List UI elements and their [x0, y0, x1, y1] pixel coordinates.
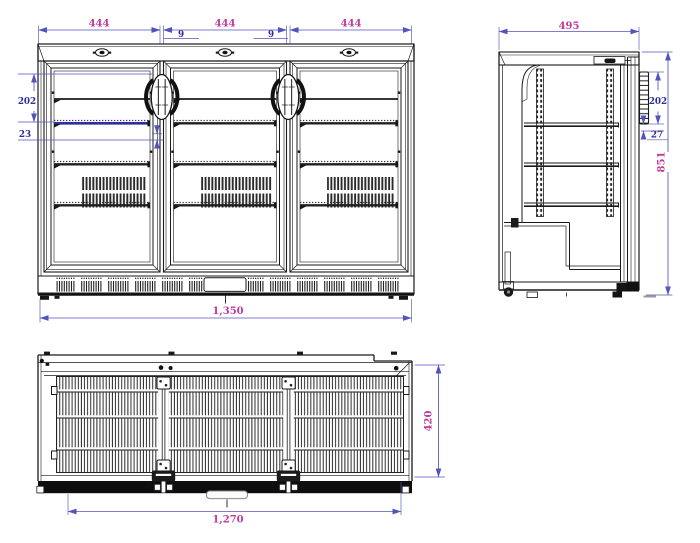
dim-top-shelf-height: 202	[18, 97, 36, 107]
side-compressor-step	[504, 218, 621, 270]
bottom-top-edge	[38, 352, 412, 376]
technical-drawing-page: 444 444 444 9 9 202 23 1,350	[0, 0, 700, 543]
door3-slatted-shelf-upper	[327, 177, 394, 190]
bottom-base-band	[37, 471, 412, 499]
side-front-foot	[613, 292, 623, 298]
dim-door-width-1: 444	[89, 19, 110, 30]
door3-lock-icon	[340, 49, 358, 57]
dim-handle-clearance: 27	[651, 131, 663, 141]
side-rear-access-panel	[505, 252, 511, 284]
corner-bolt-left	[40, 359, 44, 363]
front-foot-left	[40, 296, 49, 300]
hinge-screw	[169, 366, 173, 370]
bar-cooler-technical-drawing: 444 444 444 9 9 202 23 1,350	[0, 0, 700, 543]
side-interior-duct	[522, 65, 537, 223]
door2-slatted-shelf-upper	[201, 177, 273, 190]
grille-divider-2	[282, 377, 295, 473]
side-drain-hook	[527, 292, 538, 298]
bottom-view-drawing	[37, 352, 412, 499]
dim-overall-depth: 495	[559, 21, 580, 32]
door1-slatted-shelf-upper	[81, 177, 146, 190]
hinge-pin-tab	[297, 352, 303, 355]
door2-lock-icon	[216, 49, 234, 57]
side-top-hinge	[594, 57, 631, 65]
hinge-pin-tab	[169, 352, 175, 355]
grille-divider-1	[157, 377, 170, 473]
dim-overall-width: 1,350	[212, 306, 243, 317]
door-handle-junction-1	[146, 75, 177, 120]
glass-door-3	[290, 49, 408, 272]
side-view-drawing	[499, 52, 656, 298]
side-shelf-rail-rear	[537, 69, 544, 217]
side-bottom-hinge	[627, 283, 640, 292]
door-handle-junction-2	[273, 75, 304, 120]
dim-door-gap-2: 9	[268, 30, 274, 40]
side-top-band	[499, 52, 639, 65]
grille-clip	[52, 387, 58, 395]
hinge-pin-tab	[44, 352, 50, 355]
door1-lock-icon	[93, 49, 111, 57]
dim-shelf-clearance: 23	[19, 130, 31, 140]
front-foot-right	[399, 296, 408, 300]
dim-door-width-3: 444	[341, 19, 362, 30]
front-base-center-plate	[204, 278, 246, 292]
glass-door-2	[164, 49, 287, 272]
dim-body-depth: 420	[424, 411, 435, 432]
hinge-pin-tab	[391, 352, 397, 355]
side-door-handle	[640, 72, 649, 124]
dim-overall-height: 851	[657, 152, 668, 173]
side-shelf-rail-front	[607, 69, 614, 217]
front-view-dimensions: 444 444 444 9 9 202 23 1,350	[18, 19, 412, 323]
base-center-tab	[207, 491, 248, 499]
dim-door-width-2: 444	[215, 19, 236, 30]
grille-clip	[404, 451, 410, 459]
base-foot-plate-left	[37, 486, 44, 493]
side-door-slab	[628, 52, 640, 291]
base-foot-plate-right	[402, 486, 409, 493]
corner-bolt-right	[394, 366, 399, 371]
hinge-screw	[159, 365, 164, 370]
grille-clip	[52, 451, 58, 459]
dim-base-width: 1,270	[212, 515, 243, 526]
grille-clip	[404, 387, 410, 395]
dim-handle-length: 202	[649, 97, 667, 107]
side-view-dimensions: 495 202 27 851	[499, 21, 673, 295]
front-view-drawing	[38, 44, 414, 300]
glass-door-1	[44, 49, 160, 272]
dim-door-gap-1: 9	[178, 30, 184, 40]
